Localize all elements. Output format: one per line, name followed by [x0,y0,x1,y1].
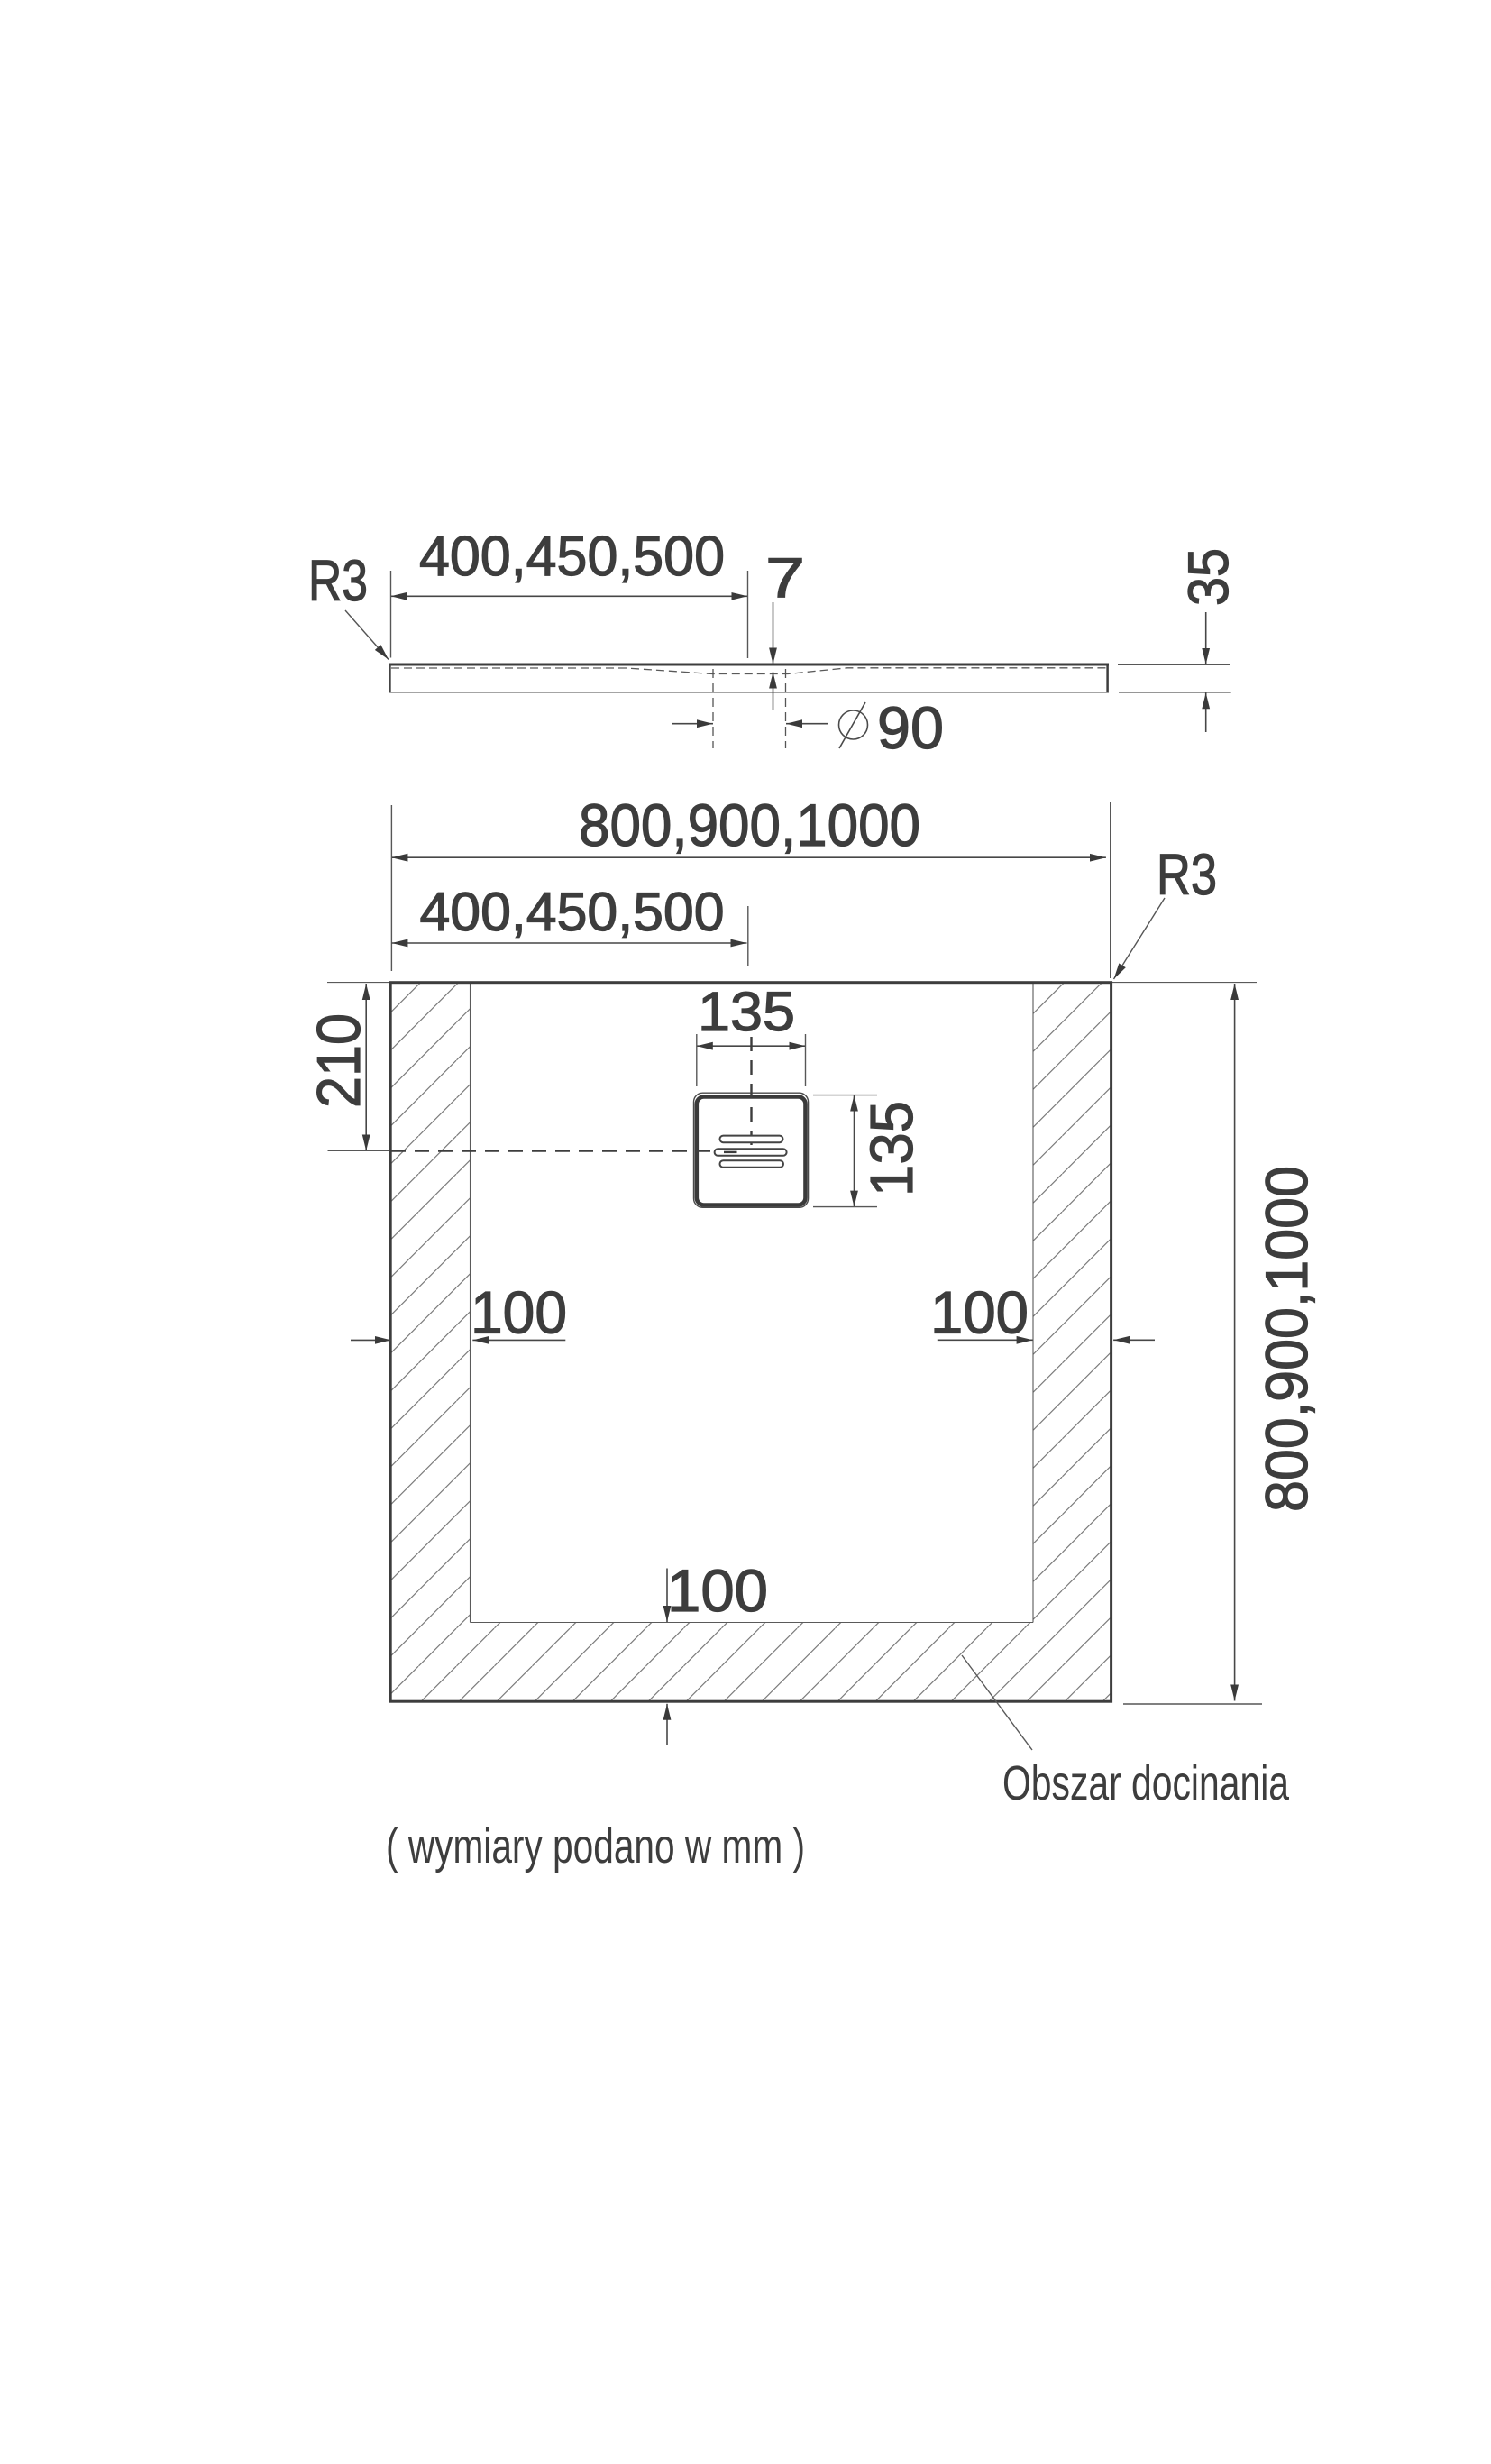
svg-text:100: 100 [930,1279,1029,1346]
svg-text:100: 100 [471,1279,567,1346]
svg-text:( wymiary podano w mm ): ( wymiary podano w mm ) [386,1819,805,1873]
svg-text:90: 90 [877,694,944,761]
svg-text:400,450,500: 400,450,500 [419,526,725,588]
svg-text:R3: R3 [1157,842,1217,907]
svg-text:R3: R3 [308,548,368,613]
svg-text:400,450,500: 400,450,500 [420,882,725,942]
svg-text:7: 7 [765,547,805,609]
svg-text:35: 35 [1177,548,1240,606]
svg-text:135: 135 [858,1101,926,1196]
svg-text:100: 100 [667,1557,768,1624]
svg-text:Obszar docinania: Obszar docinania [1002,1756,1290,1810]
svg-text:210: 210 [305,1013,373,1108]
svg-text:135: 135 [698,981,795,1042]
svg-text:800,900,1000: 800,900,1000 [579,792,920,858]
svg-text:800,900,1000: 800,900,1000 [1253,1166,1320,1512]
